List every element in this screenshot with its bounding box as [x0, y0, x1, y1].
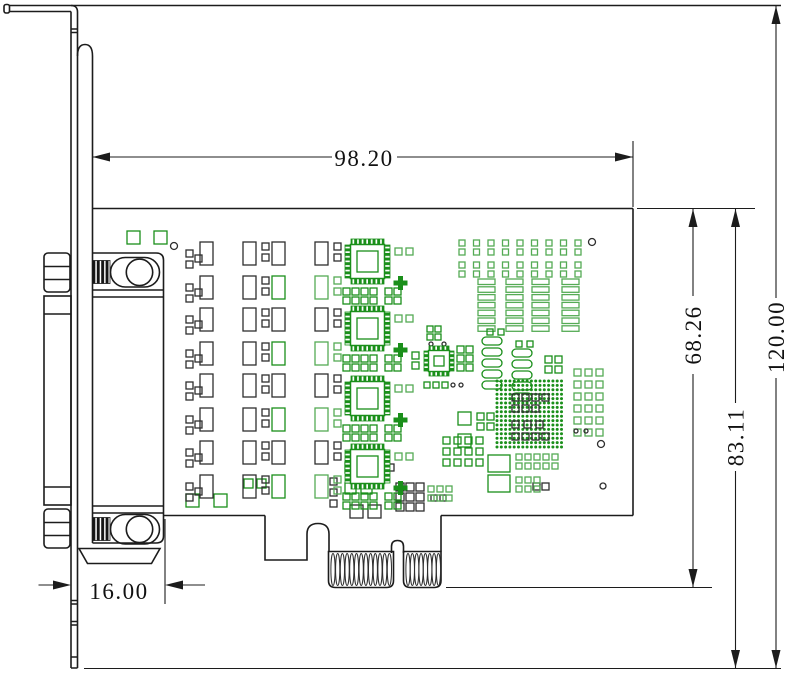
- smd-pad: [361, 364, 368, 371]
- bga-ball-pad: [504, 384, 507, 387]
- smd-pad: [574, 405, 581, 412]
- bga-ball-pad: [539, 424, 542, 427]
- bga-ball-pad: [534, 446, 537, 449]
- bga-ball-pad: [547, 419, 550, 422]
- smd-pad: [574, 369, 581, 376]
- smd-pad: [516, 477, 522, 483]
- smd-pad: [503, 262, 509, 268]
- smd-pad: [406, 385, 413, 392]
- smd-pad: [361, 297, 368, 304]
- smd-pad: [334, 453, 341, 460]
- bga-ball-pad: [504, 406, 507, 409]
- smd-pad: [315, 342, 328, 365]
- smd-pad: [315, 242, 328, 265]
- bga-ball-pad: [530, 384, 533, 387]
- smd-pad: [243, 408, 256, 431]
- bga-ball-pad: [513, 446, 516, 449]
- smd-pad: [487, 329, 493, 335]
- smd-pad: [488, 262, 494, 268]
- bga-ball-pad: [504, 388, 507, 391]
- gold-finger-contact: [331, 554, 335, 586]
- bga-ball-pad: [556, 428, 559, 431]
- bga-ball-pad: [560, 380, 563, 383]
- smd-pad: [262, 386, 269, 393]
- smd-pad: [334, 277, 341, 284]
- bga-ball-pad: [517, 415, 520, 418]
- smd-pad: [334, 354, 341, 361]
- bga-ball-pad: [543, 415, 546, 418]
- smd-pad: [532, 240, 538, 246]
- smd-pad: [186, 250, 193, 257]
- smd-pad: [543, 454, 549, 460]
- bga-ball-pad: [508, 397, 511, 400]
- smd-pad: [527, 341, 533, 347]
- bga-ball-pad: [543, 384, 546, 387]
- qfp-chip-body: [351, 245, 385, 279]
- bga-ball-pad: [547, 406, 550, 409]
- bga-ball-pad: [530, 415, 533, 418]
- smd-pad: [272, 475, 285, 498]
- bga-ball-pad: [539, 415, 542, 418]
- smd-pad: [385, 434, 392, 441]
- bga-ball-pad: [560, 419, 563, 422]
- smd-pad: [482, 337, 502, 345]
- smd-pad: [406, 315, 413, 322]
- jack-screw-thread-top: [93, 261, 111, 284]
- smd-pad: [562, 318, 579, 324]
- gold-finger-contact: [406, 554, 410, 586]
- bga-ball-pad: [521, 446, 524, 449]
- pcb-components: [127, 231, 606, 586]
- smd-pad: [186, 449, 193, 456]
- smd-pad: [433, 382, 439, 388]
- bga-ball-pad: [508, 402, 511, 405]
- smd-pad: [459, 271, 465, 277]
- bga-ball-pad: [560, 437, 563, 440]
- smd-pad: [574, 393, 581, 400]
- smd-pad: [575, 249, 581, 255]
- bga-ball-pad: [534, 437, 537, 440]
- bga-ball-pad: [504, 402, 507, 405]
- bga-ball-pad: [543, 388, 546, 391]
- smd-pad: [437, 486, 443, 492]
- bga-ball-pad: [496, 397, 499, 400]
- smd-pad: [517, 262, 523, 268]
- smd-pad: [585, 369, 592, 376]
- smd-pad: [186, 393, 193, 400]
- bga-ball-pad: [496, 419, 499, 422]
- bga-ball-pad: [534, 441, 537, 444]
- qfn-chip-body: [429, 351, 450, 372]
- smd-pad: [575, 271, 581, 277]
- smd-pad: [443, 459, 450, 466]
- bga-ball-pad: [500, 410, 503, 413]
- smd-pad: [330, 500, 337, 507]
- smd-pad: [243, 374, 256, 397]
- via: [600, 483, 606, 489]
- smd-pad: [585, 417, 592, 424]
- jack-screw-thread-bottom: [93, 518, 111, 541]
- bga-ball-pad: [508, 384, 511, 387]
- smd-pad: [546, 249, 552, 255]
- smd-pad: [370, 425, 377, 432]
- crystal-pad: [394, 281, 408, 286]
- hex-nut-bottom-facets: [44, 523, 70, 536]
- bga-ball-pad: [530, 441, 533, 444]
- smd-pad: [186, 483, 193, 490]
- smd-pad: [243, 342, 256, 365]
- gold-finger-contact: [359, 554, 363, 586]
- bga-ball-pad: [539, 446, 542, 449]
- bga-ball-pad: [513, 402, 516, 405]
- smd-pad: [435, 334, 441, 340]
- smd-pad: [534, 486, 540, 492]
- smd-pad: [427, 334, 433, 340]
- smd-pad: [478, 279, 495, 285]
- bga-ball-pad: [504, 380, 507, 383]
- bga-ball-pad: [526, 415, 529, 418]
- smd-pad: [585, 381, 592, 388]
- bga-ball-pad: [543, 380, 546, 383]
- bga-ball-pad: [513, 384, 516, 387]
- bga-ball-pad: [513, 380, 516, 383]
- bga-ball-pad: [496, 446, 499, 449]
- bga-ball-pad: [513, 397, 516, 400]
- smd-pad: [352, 434, 359, 441]
- via: [598, 441, 605, 448]
- smd-pad: [370, 434, 377, 441]
- smd-pad: [442, 382, 448, 388]
- bga-ball-pad: [496, 424, 499, 427]
- smd-pad: [370, 297, 377, 304]
- bga-ball-pad: [556, 410, 559, 413]
- smd-pad: [446, 495, 452, 501]
- bga-ball-pad: [534, 415, 537, 418]
- smd-pad: [243, 276, 256, 299]
- smd-pad: [370, 364, 377, 371]
- bga-ball-pad: [496, 388, 499, 391]
- bga-ball-pad: [508, 393, 511, 396]
- smd-pad: [532, 249, 538, 255]
- bga-ball-pad: [551, 424, 554, 427]
- smd-pad: [503, 240, 509, 246]
- bga-ball-pad: [526, 441, 529, 444]
- technical-drawing-canvas: 98.20 120.00 83.11 68.26: [0, 0, 800, 676]
- smd-pad: [334, 420, 341, 427]
- smd-pad: [503, 249, 509, 255]
- smd-pad: [457, 355, 464, 362]
- gold-finger-contact: [354, 554, 358, 586]
- smd-pad: [195, 255, 202, 262]
- gold-finger-contact: [336, 554, 340, 586]
- smd-pad: [474, 240, 480, 246]
- dim-bracket-offset: 16.00: [39, 519, 206, 604]
- bga-ball-pad: [513, 388, 516, 391]
- smd-pad: [385, 493, 392, 500]
- smd-pad: [334, 254, 341, 261]
- dim-label-120-00: 120.00: [764, 301, 789, 373]
- smd-pad: [435, 326, 441, 332]
- smd-pad: [562, 287, 579, 293]
- smd-pad: [512, 360, 532, 368]
- smd-pad: [575, 240, 581, 246]
- bga-ball-pad: [539, 402, 542, 405]
- bga-ball-pad: [521, 380, 524, 383]
- bga-ball-pad: [543, 397, 546, 400]
- smd-pad: [352, 364, 359, 371]
- smd-pad: [262, 254, 269, 261]
- smd-pad: [534, 477, 540, 483]
- bga-ball-pad: [556, 393, 559, 396]
- smd-pad: [154, 231, 167, 244]
- smd-pad: [428, 486, 434, 492]
- bga-ball-pad: [496, 402, 499, 405]
- bga-ball-pad: [526, 446, 529, 449]
- bga-ball-pad: [508, 441, 511, 444]
- smd-pad: [561, 249, 567, 255]
- bga-ball-pad: [534, 384, 537, 387]
- hex-nut-top: [44, 253, 70, 292]
- bga-ball-pad: [521, 384, 524, 387]
- bga-ball-pad: [543, 410, 546, 413]
- bga-ball-pad: [521, 441, 524, 444]
- smd-pad: [186, 416, 193, 423]
- smd-pad: [487, 413, 494, 420]
- smd-pad: [395, 453, 402, 460]
- bga-ball-pad: [560, 424, 563, 427]
- smd-pad: [272, 276, 285, 299]
- gold-finger-contact: [415, 554, 419, 586]
- pcie-card-dimension-drawing: 98.20 120.00 83.11 68.26: [0, 0, 800, 676]
- gold-finger-contact: [410, 554, 414, 586]
- smd-pad: [561, 262, 567, 268]
- smd-pad: [506, 295, 523, 301]
- smd-pad: [546, 271, 552, 277]
- smd-pad: [361, 355, 368, 362]
- bga-ball-pad: [496, 410, 499, 413]
- bga-ball-pad: [556, 446, 559, 449]
- bga-ball-pad: [500, 397, 503, 400]
- smd-pad: [477, 423, 484, 430]
- bga-ball-pad: [547, 410, 550, 413]
- smd-pad: [370, 288, 377, 295]
- bga-ball-pad: [560, 441, 563, 444]
- bga-ball-pad: [500, 424, 503, 427]
- gold-finger-contact: [387, 554, 391, 586]
- smd-pad: [406, 453, 413, 460]
- smd-pad: [574, 381, 581, 388]
- bga-ball-pad: [556, 415, 559, 418]
- bga-ball-pad: [513, 441, 516, 444]
- smd-pad: [412, 352, 419, 359]
- smd-pad: [334, 343, 341, 350]
- smd-pad: [186, 261, 193, 268]
- smd-pad: [195, 355, 202, 362]
- smd-pad: [476, 448, 483, 455]
- smd-pad: [443, 448, 450, 455]
- gold-finger-contact: [383, 554, 387, 586]
- bga-ball-pad: [551, 428, 554, 431]
- bracket-stamp-marks: [71, 29, 78, 668]
- smd-pad: [394, 364, 401, 371]
- jack-screw-head-bottom: [126, 516, 152, 542]
- smd-pad: [459, 262, 465, 268]
- gold-finger-contact: [419, 554, 423, 586]
- smd-pad: [394, 297, 401, 304]
- smd-pad: [487, 423, 494, 430]
- smd-pad: [343, 297, 350, 304]
- smd-pad: [412, 362, 419, 369]
- smd-pad: [195, 421, 202, 428]
- smd-pad: [262, 343, 269, 350]
- smd-pad: [512, 349, 532, 357]
- bga-ball-pad: [496, 428, 499, 431]
- smd-pad: [370, 355, 377, 362]
- smd-pad: [334, 442, 341, 449]
- smd-pad: [545, 356, 552, 363]
- smd-pad: [334, 386, 341, 393]
- smd-pad: [474, 262, 480, 268]
- smd-pad: [334, 309, 341, 316]
- smd-pad: [498, 329, 504, 335]
- bga-ball-pad: [508, 428, 511, 431]
- bga-ball-pad: [500, 406, 503, 409]
- arrowhead-bottom: [731, 650, 740, 668]
- smd-pad: [466, 355, 473, 362]
- smd-pad: [525, 477, 531, 483]
- bga-ball-pad: [513, 406, 516, 409]
- smd-pad: [525, 454, 531, 460]
- smd-pad: [343, 502, 350, 509]
- smd-pad: [596, 405, 603, 412]
- bga-ball-pad: [500, 437, 503, 440]
- gold-finger-contact: [345, 554, 349, 586]
- bga-ball-pad: [500, 428, 503, 431]
- connector-flange: [44, 296, 71, 505]
- smd-pad: [186, 295, 193, 302]
- smd-pad: [482, 370, 502, 378]
- smd-pad: [516, 463, 522, 469]
- smd-pad: [459, 240, 465, 246]
- bga-ball-pad: [500, 388, 503, 391]
- bga-ball-pad: [560, 384, 563, 387]
- smd-pad: [385, 355, 392, 362]
- bga-ball-pad: [521, 402, 524, 405]
- smd-pad: [457, 364, 464, 371]
- smd-pad: [458, 412, 471, 425]
- smd-pad: [512, 371, 532, 379]
- bga-ball-pad: [547, 424, 550, 427]
- smd-pad: [262, 409, 269, 416]
- gold-finger-contact: [423, 554, 427, 586]
- smd-pad: [186, 316, 193, 323]
- smd-pad: [272, 308, 285, 331]
- smd-pad: [186, 350, 193, 357]
- smd-pad: [466, 364, 473, 371]
- connector-housing-bands: [93, 290, 164, 513]
- via: [584, 429, 588, 433]
- smd-pad: [596, 369, 603, 376]
- bga-ball-pad: [551, 415, 554, 418]
- crystal-pad: [394, 418, 408, 423]
- smd-pad: [478, 310, 495, 316]
- smd-pad: [465, 459, 472, 466]
- smd-pad: [343, 288, 350, 295]
- bga-ball-pad: [560, 393, 563, 396]
- smd-pad: [596, 393, 603, 400]
- bga-ball-pad: [560, 446, 563, 449]
- arrowhead-left: [53, 581, 71, 590]
- smd-pad: [262, 277, 269, 284]
- bracket-top-tab-end-cap: [4, 5, 10, 14]
- smd-pad: [562, 302, 579, 308]
- qfp-chip-body: [351, 312, 385, 346]
- smd-pad: [532, 262, 538, 268]
- bga-ball-pad: [504, 446, 507, 449]
- smd-pad: [416, 483, 424, 491]
- bga-ball-pad: [560, 428, 563, 431]
- smd-pad: [186, 460, 193, 467]
- smd-pad: [532, 318, 549, 324]
- smd-pad: [574, 417, 581, 424]
- smd-pad: [272, 342, 285, 365]
- smd-pad: [478, 302, 495, 308]
- smd-pad: [195, 321, 202, 328]
- smd-pad: [243, 242, 256, 265]
- bga-ball-pad: [508, 419, 511, 422]
- arrowhead-top: [772, 6, 781, 24]
- bga-ball-pad: [521, 415, 524, 418]
- smd-pad: [127, 231, 140, 244]
- via: [459, 383, 463, 387]
- smd-pad: [361, 425, 368, 432]
- smd-pad: [315, 276, 328, 299]
- bga-ball-pad: [547, 428, 550, 431]
- bga-ball-pad: [526, 384, 529, 387]
- smd-pad: [552, 454, 558, 460]
- crystal-pad: [394, 486, 408, 491]
- smd-pad: [585, 393, 592, 400]
- bga-ball-pad: [508, 388, 511, 391]
- bracket-face-plate: [78, 45, 93, 544]
- smd-pad: [315, 475, 328, 498]
- smd-pad: [214, 494, 227, 507]
- bga-ball-pad: [508, 437, 511, 440]
- bga-ball-pad: [526, 424, 529, 427]
- smd-pad: [395, 315, 402, 322]
- bga-ball-pad: [547, 380, 550, 383]
- dim-bracket-height: 83.11: [637, 209, 755, 669]
- gold-finger-contact: [369, 554, 373, 586]
- smd-pad: [546, 262, 552, 268]
- bga-ball-pad: [508, 424, 511, 427]
- gold-finger-contact: [364, 554, 368, 586]
- smd-pad: [186, 382, 193, 389]
- smd-pad: [477, 413, 484, 420]
- smd-pad: [272, 408, 285, 431]
- bga-ball-pad: [504, 419, 507, 422]
- dim-goldfinger-height: 68.26: [446, 209, 712, 588]
- smd-pad: [562, 310, 579, 316]
- smd-pad: [585, 405, 592, 412]
- smd-pad: [395, 385, 402, 392]
- bga-ball-pad: [504, 437, 507, 440]
- smd-pad: [262, 442, 269, 449]
- smd-pad: [555, 366, 562, 373]
- bga-ball-pad: [526, 437, 529, 440]
- bga-ball-pad: [556, 397, 559, 400]
- smd-pad: [552, 463, 558, 469]
